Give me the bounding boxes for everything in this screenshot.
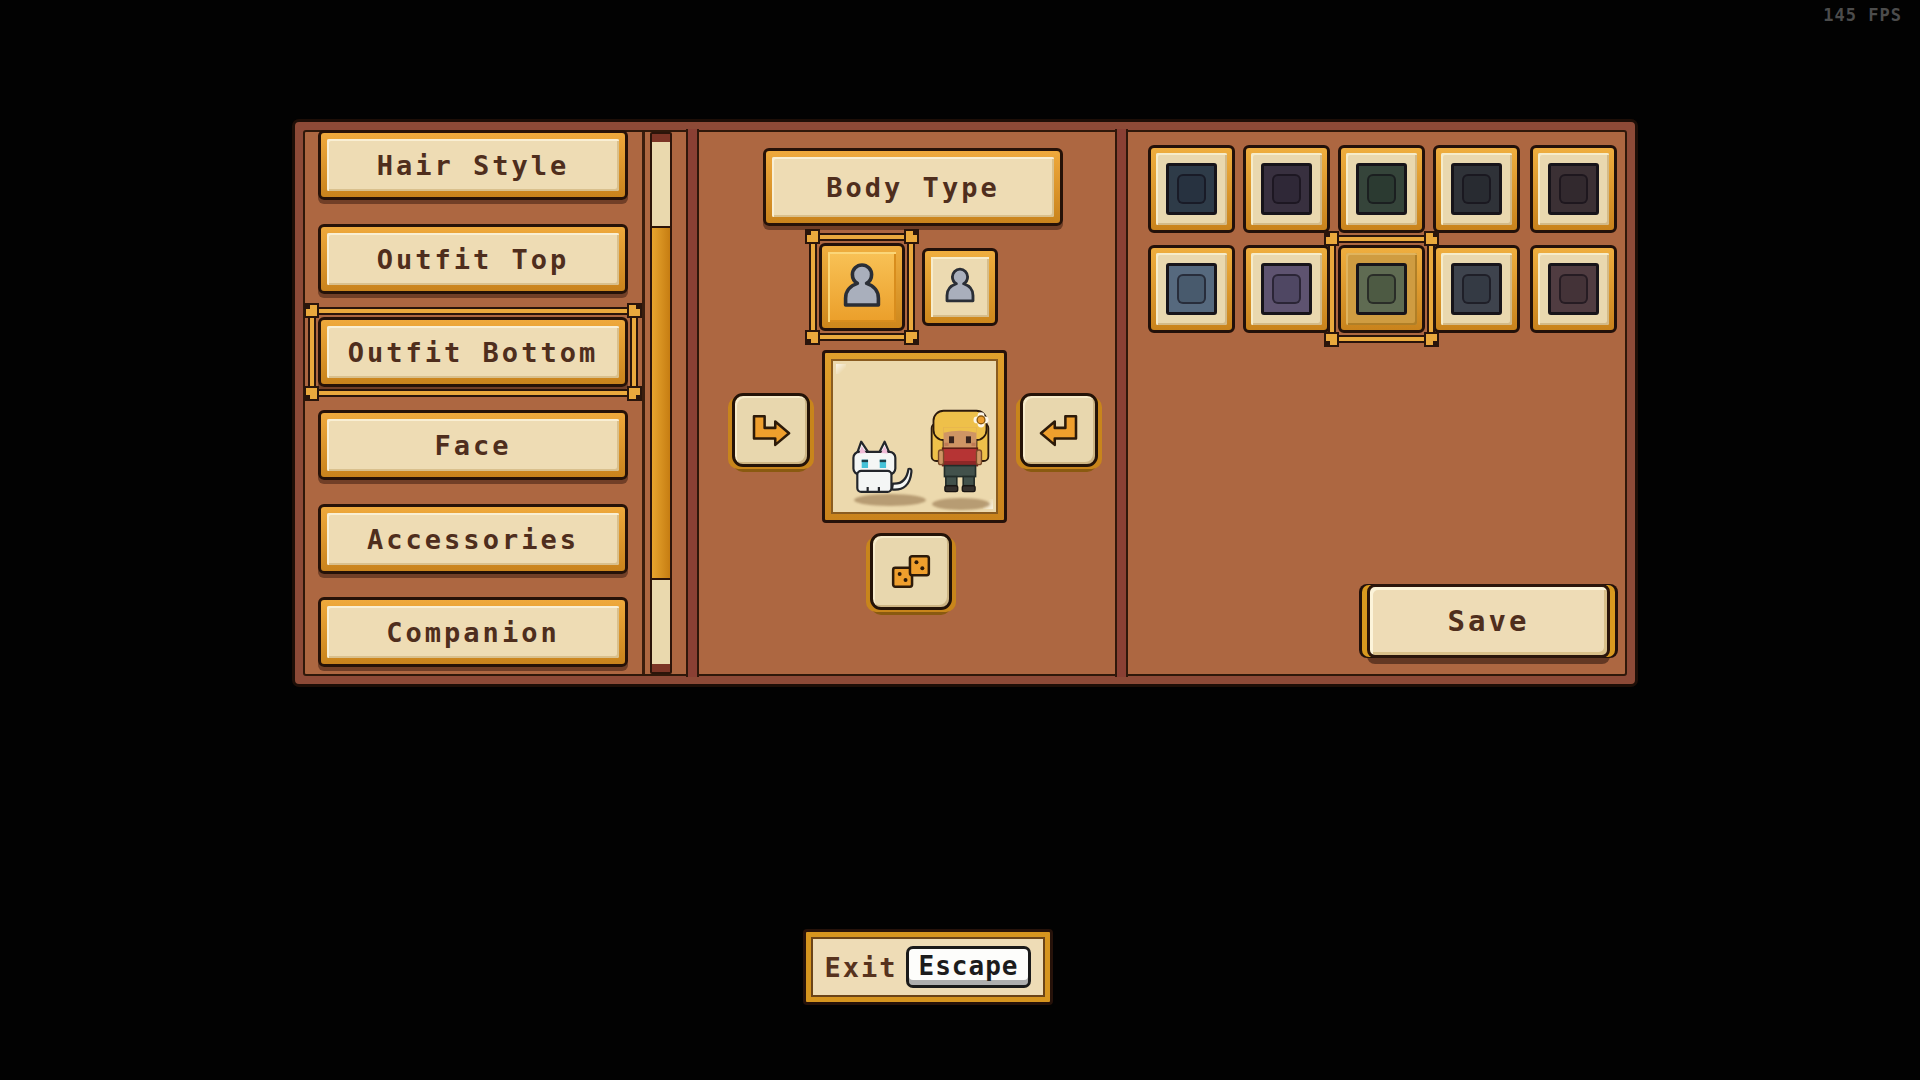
sidebar-item-outfit-bottom[interactable]: Outfit Bottom bbox=[318, 317, 628, 387]
page-edge-line bbox=[642, 132, 645, 674]
sidebar-item-hair-style[interactable]: Hair Style bbox=[318, 130, 628, 200]
color-swatch[interactable] bbox=[1243, 245, 1330, 333]
option-face bbox=[828, 252, 896, 322]
sidebar-item-label: Companion bbox=[386, 617, 559, 648]
header-face: Body Type bbox=[772, 157, 1054, 217]
swatch-color bbox=[1451, 263, 1502, 315]
color-swatch[interactable] bbox=[1243, 145, 1330, 233]
swatch-color bbox=[1166, 263, 1217, 315]
sidebar-item-label: Outfit Bottom bbox=[348, 337, 598, 368]
scrollbar-track-bottom[interactable] bbox=[652, 580, 670, 664]
scrollbar-bottom-cap bbox=[652, 664, 670, 672]
button-face: Accessories bbox=[327, 513, 619, 565]
escape-key-badge: Escape bbox=[906, 946, 1032, 988]
rotate-right-button[interactable] bbox=[1020, 393, 1098, 467]
sidebar-item-label: Outfit Top bbox=[377, 244, 570, 275]
color-swatch[interactable] bbox=[1433, 145, 1520, 233]
color-swatch[interactable] bbox=[1338, 145, 1425, 233]
sidebar-item-face[interactable]: Face bbox=[318, 410, 628, 480]
character-sprite bbox=[928, 408, 992, 504]
exit-button-face: Exit Escape bbox=[811, 937, 1045, 997]
sidebar-item-label: Hair Style bbox=[377, 150, 570, 181]
swatch-color bbox=[1356, 163, 1407, 215]
button-face: Outfit Top bbox=[327, 233, 619, 285]
button-face: Companion bbox=[327, 606, 619, 658]
swatch-color bbox=[1261, 263, 1312, 315]
exit-button-label: Exit bbox=[825, 952, 898, 983]
swatch-color bbox=[1548, 163, 1599, 215]
body-type-option-a[interactable] bbox=[819, 243, 905, 331]
fps-counter: 145 FPS bbox=[1823, 5, 1902, 25]
panel-divider-left bbox=[686, 129, 699, 677]
companion-cat-sprite bbox=[850, 438, 928, 498]
swatch-color bbox=[1548, 263, 1599, 315]
body-type-header: Body Type bbox=[763, 148, 1063, 226]
sidebar-item-accessories[interactable]: Accessories bbox=[318, 504, 628, 574]
rotate-left-icon bbox=[749, 413, 793, 447]
button-face: Face bbox=[327, 419, 619, 471]
dice-icon bbox=[890, 551, 932, 593]
person-icon bbox=[941, 266, 979, 308]
color-swatch[interactable] bbox=[1530, 145, 1617, 233]
person-icon bbox=[838, 261, 886, 313]
swatch-color bbox=[1166, 163, 1217, 215]
button-face: Hair Style bbox=[327, 139, 619, 191]
color-swatch[interactable] bbox=[1433, 245, 1520, 333]
swatch-color bbox=[1451, 163, 1502, 215]
panel-divider-right bbox=[1115, 129, 1128, 677]
sidebar-item-label: Face bbox=[434, 430, 511, 461]
game-screen: 145 FPS Hair Style Outfit Top Outfit Bot… bbox=[0, 0, 1920, 1080]
sidebar-item-companion[interactable]: Companion bbox=[318, 597, 628, 667]
exit-button[interactable]: Exit Escape bbox=[803, 929, 1053, 1005]
color-swatch[interactable] bbox=[1148, 245, 1235, 333]
scrollbar-top-cap bbox=[652, 134, 670, 142]
save-button[interactable]: Save bbox=[1367, 584, 1610, 658]
swatch-color bbox=[1356, 263, 1407, 315]
option-face bbox=[931, 257, 989, 317]
color-swatch[interactable] bbox=[1148, 145, 1235, 233]
color-swatch[interactable] bbox=[1530, 245, 1617, 333]
rotate-left-button[interactable] bbox=[732, 393, 810, 467]
scrollbar-thumb[interactable] bbox=[652, 226, 670, 580]
randomize-button[interactable] bbox=[870, 533, 952, 610]
rotate-right-icon bbox=[1037, 413, 1081, 447]
button-face: Outfit Bottom bbox=[327, 326, 619, 378]
swatch-color bbox=[1261, 163, 1312, 215]
sidebar-item-outfit-top[interactable]: Outfit Top bbox=[318, 224, 628, 294]
body-type-title: Body Type bbox=[826, 172, 999, 203]
sidebar-item-label: Accessories bbox=[367, 524, 579, 555]
sidebar-scrollbar[interactable] bbox=[650, 132, 672, 674]
color-swatch[interactable] bbox=[1338, 245, 1425, 333]
save-button-label: Save bbox=[1448, 604, 1530, 638]
body-type-option-b[interactable] bbox=[922, 248, 998, 326]
scrollbar-track-top[interactable] bbox=[652, 142, 670, 226]
